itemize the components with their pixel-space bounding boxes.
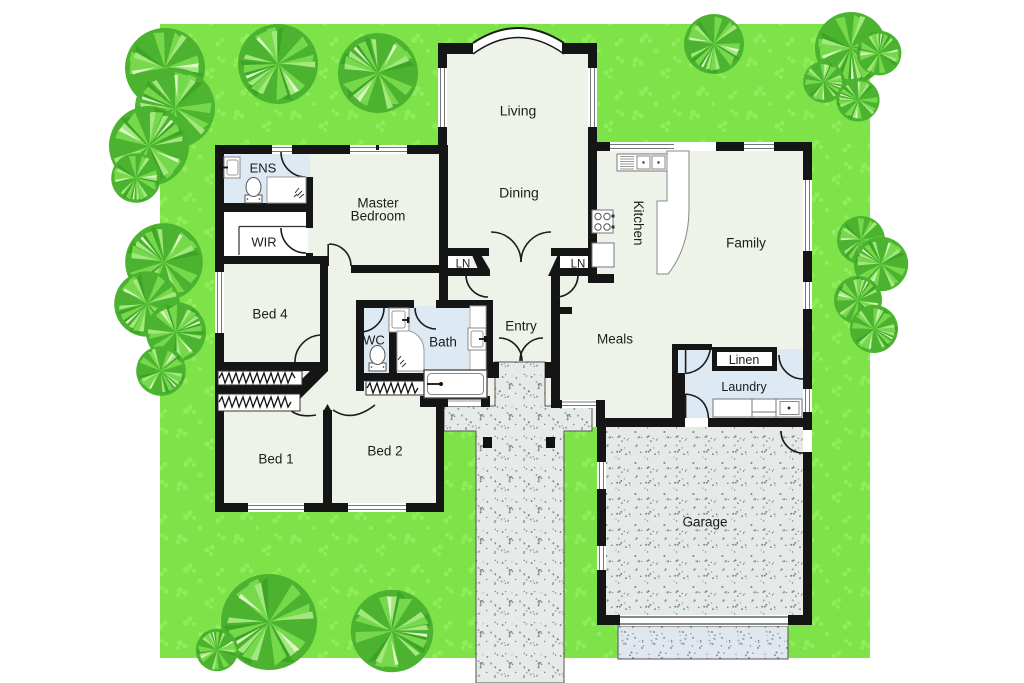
svg-text:Bed 1: Bed 1 [258, 452, 293, 467]
svg-text:Bed 2: Bed 2 [367, 444, 402, 459]
svg-text:Bedroom: Bedroom [351, 209, 406, 224]
svg-text:Bath: Bath [429, 335, 457, 350]
svg-text:Linen: Linen [729, 353, 760, 367]
svg-text:Kitchen: Kitchen [631, 200, 646, 245]
svg-text:LN: LN [571, 259, 586, 271]
svg-text:WIR: WIR [251, 235, 276, 250]
svg-text:LN: LN [456, 259, 471, 271]
svg-text:Dining: Dining [499, 185, 539, 201]
svg-text:Meals: Meals [597, 332, 633, 347]
svg-text:WC: WC [363, 333, 385, 348]
svg-text:ENS: ENS [250, 161, 277, 176]
svg-text:Entry: Entry [505, 319, 537, 334]
svg-text:Living: Living [500, 103, 537, 119]
svg-text:Family: Family [726, 236, 766, 251]
svg-text:Garage: Garage [682, 515, 727, 530]
svg-text:Bed 4: Bed 4 [252, 307, 288, 322]
svg-text:Laundry: Laundry [721, 380, 767, 394]
